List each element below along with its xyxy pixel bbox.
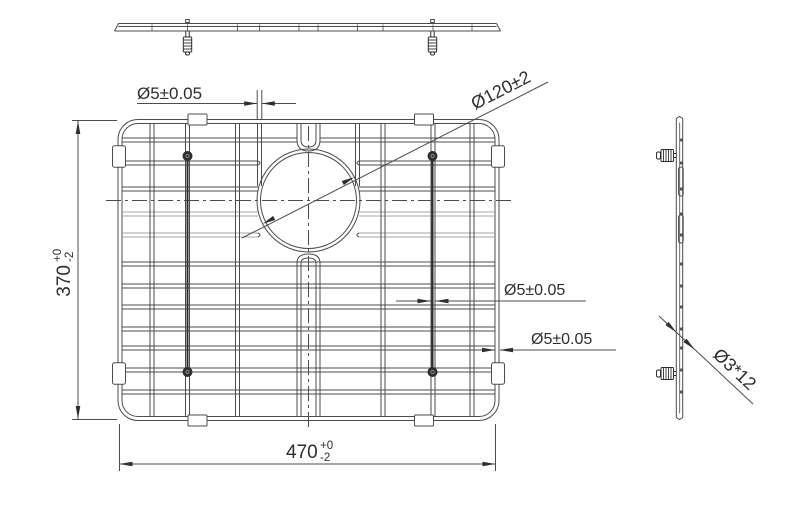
dimension-labels: Ø5±0.05 Ø120±2 Ø5±0.05 Ø5±0.05 370 +0 -2… — [52, 67, 760, 464]
dim-width-tol-upper: +0 — [320, 440, 333, 452]
top-view — [115, 20, 501, 56]
dim-width-tol-lower: -2 — [320, 452, 330, 464]
front-view — [106, 114, 512, 430]
dim-height-label: 370 +0 -2 — [52, 249, 76, 297]
dimension-lines — [72, 82, 753, 471]
dim-wire-mid-label: Ø5±0.05 — [504, 282, 565, 299]
drawing-canvas: Ø5±0.05 Ø120±2 Ø5±0.05 Ø5±0.05 370 +0 -2… — [0, 0, 800, 516]
dim-height-value: 370 — [54, 265, 75, 297]
dim-wire-frame-label: Ø5±0.05 — [531, 331, 592, 348]
dim-wire-top-label: Ø5±0.05 — [137, 84, 202, 103]
technical-drawing: Ø5±0.05 Ø120±2 Ø5±0.05 Ø5±0.05 370 +0 -2… — [0, 0, 800, 516]
dim-height-tol-lower: -2 — [64, 252, 76, 262]
dim-width-label: 470 +0 -2 — [286, 440, 333, 464]
dim-width-value: 470 — [286, 442, 318, 463]
dim-height-tol-upper: +0 — [52, 249, 64, 262]
side-view — [657, 117, 684, 420]
